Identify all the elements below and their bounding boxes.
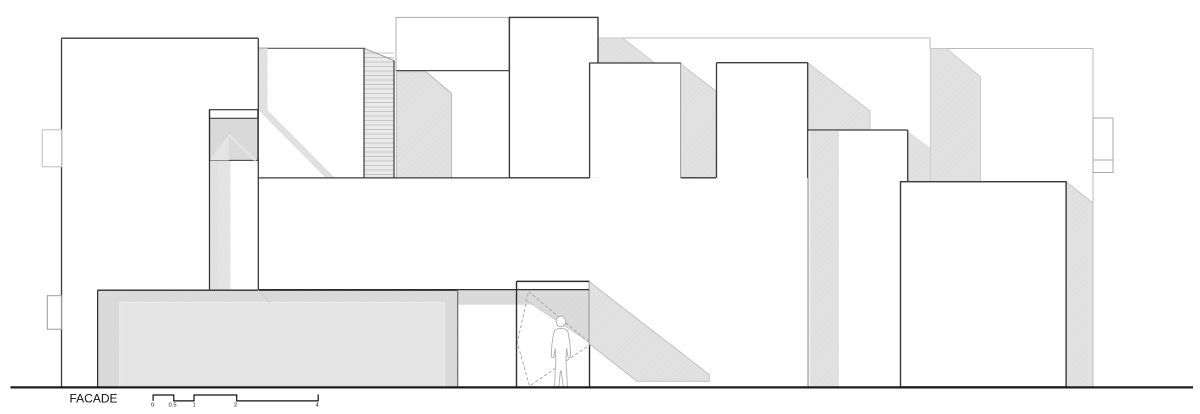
svg-text:0: 0	[151, 403, 154, 409]
svg-text:0.5: 0.5	[169, 403, 177, 409]
svg-text:2: 2	[234, 403, 237, 409]
svg-text:4: 4	[316, 403, 320, 409]
svg-text:FACADE: FACADE	[70, 392, 118, 406]
svg-text:1: 1	[193, 403, 196, 409]
